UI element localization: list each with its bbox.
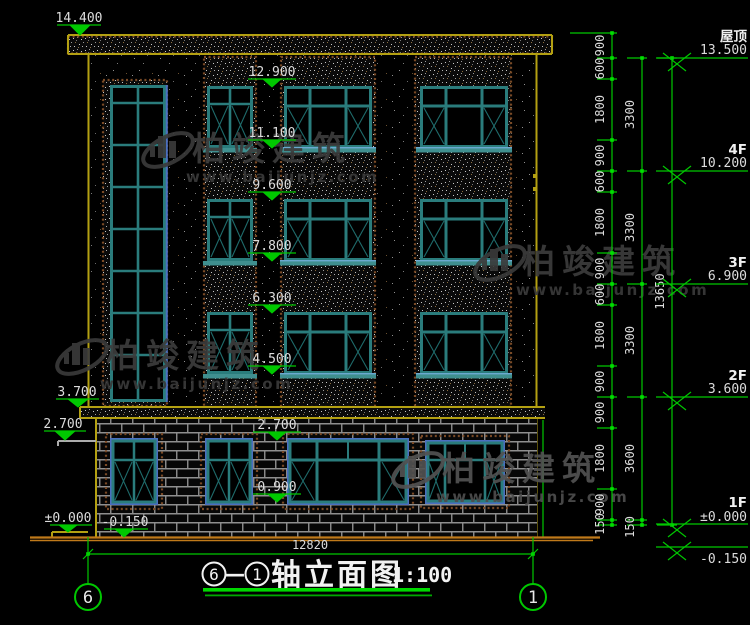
level-label: 9.600 <box>252 178 291 193</box>
level-label: -0.150 <box>102 515 149 530</box>
dim-label: 150 <box>593 513 607 535</box>
level-marker-4f: 4F 10.200 <box>656 142 748 184</box>
dim-label: 3300 <box>623 213 637 242</box>
dim-label: 900 <box>593 258 607 280</box>
level-label: 7.800 <box>252 239 291 254</box>
title-scale: 1:100 <box>392 563 452 587</box>
dim-label: 1800 <box>593 321 607 350</box>
dim-label: 600 <box>593 58 607 80</box>
level-marker-14400: 14.400 <box>56 11 103 35</box>
watermark-url: www.baijunjz.com <box>100 375 293 393</box>
dim-label: 1800 <box>593 95 607 124</box>
level-marker-2f: 2F 3.600 <box>656 368 748 410</box>
level-label: 2.700 <box>257 418 296 433</box>
level-label: 4.500 <box>252 352 291 367</box>
dim-label: 1800 <box>593 208 607 237</box>
level-label: 14.400 <box>56 11 103 26</box>
dim-label: 900 <box>593 145 607 167</box>
pipe-bracket <box>533 174 537 178</box>
dim-label: 12820 <box>292 538 328 552</box>
roof-slab <box>68 35 552 54</box>
level-label: ±0.000 <box>45 511 92 526</box>
grid-number: 1 <box>528 588 538 608</box>
watermark-brand: 柏竣建筑 <box>442 449 602 488</box>
level-label: 0.900 <box>257 480 296 495</box>
title-underline <box>203 588 430 592</box>
dim-label: 600 <box>593 171 607 193</box>
dim-label: 150 <box>623 516 637 538</box>
storey-level: ±0.000 <box>700 510 747 525</box>
level-label: 2.700 <box>43 417 82 432</box>
dim-label: 3300 <box>623 326 637 355</box>
level-label: 11.100 <box>249 126 296 141</box>
watermark-brand: 柏竣建筑 <box>106 336 266 375</box>
dim-label: 900 <box>593 371 607 393</box>
drawing-canvas: 柏竣建筑 www.baijunjz.com 柏竣建筑 www.baijunjz.… <box>0 0 750 625</box>
level-label: 12.900 <box>249 65 296 80</box>
cad-elevation-drawing: 柏竣建筑 www.baijunjz.com 柏竣建筑 www.baijunjz.… <box>0 0 750 625</box>
storey-level: 13.500 <box>700 43 747 58</box>
dim-label: 13650 <box>653 273 667 309</box>
level-marker-zero-left: ±0.000 <box>45 511 92 532</box>
dim-label: 1800 <box>593 444 607 473</box>
storey-level: -0.150 <box>700 552 747 567</box>
grid-number: 6 <box>83 588 93 608</box>
drawing-title: 6 — 1 轴立面图 1:100 <box>203 558 453 596</box>
title-text: 轴立面图 <box>271 558 403 593</box>
level-label: 6.300 <box>252 291 291 306</box>
level-marker-1f: 1F ±0.000 <box>656 495 748 537</box>
dim-label: 900 <box>593 494 607 516</box>
dim-label: 3600 <box>623 444 637 473</box>
title-axis-start: 6 <box>209 565 219 584</box>
windows-3f <box>203 199 512 266</box>
level-marker-2700-left: 2.700 <box>43 417 86 440</box>
level-label: 3.700 <box>57 385 96 400</box>
pipe-bracket <box>533 187 537 191</box>
dim-label: 3300 <box>623 100 637 129</box>
dim-label: 900 <box>593 402 607 424</box>
grid-bubble-1: 1 <box>520 537 546 610</box>
grid-bubble-6: 6 <box>75 537 101 610</box>
level-marker-roof: 屋顶 13.500 <box>656 29 748 71</box>
storey-level: 6.900 <box>708 269 747 284</box>
title-separator: — <box>225 562 245 586</box>
title-underline-thin <box>205 595 432 597</box>
ledge <box>58 441 96 446</box>
level-marker-grade-right: -0.150 <box>656 542 748 567</box>
floor-slab <box>80 407 545 418</box>
storey-level: 3.600 <box>708 382 747 397</box>
storey-level: 10.200 <box>700 156 747 171</box>
dim-label: 900 <box>593 35 607 57</box>
dim-label: 600 <box>593 284 607 306</box>
storey-name: 1F <box>728 495 747 511</box>
title-axis-end: 1 <box>252 565 262 584</box>
